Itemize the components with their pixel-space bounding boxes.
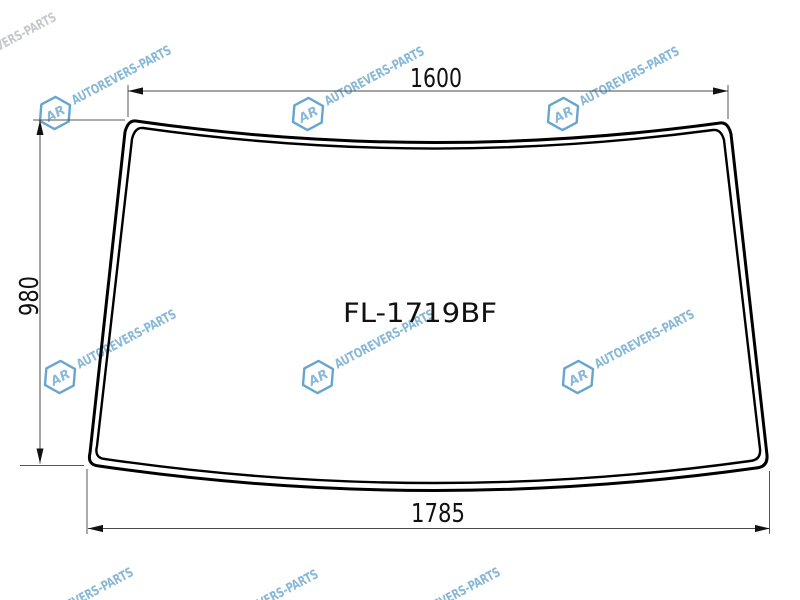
dimension-label-bottom: 1785 xyxy=(411,499,465,529)
arrowhead-bottom-left xyxy=(88,525,103,532)
arrowhead-top-left xyxy=(128,87,143,94)
part-number-label: FL-1719BF xyxy=(343,298,497,329)
technical-drawing-page: AR AUTOREVERS-PARTS AR AUTOREVERS-PARTS … xyxy=(0,0,800,600)
arrowhead-bottom-right xyxy=(755,525,770,532)
arrowhead-left-down xyxy=(37,449,44,464)
dimension-label-top: 1600 xyxy=(410,64,462,94)
dimension-label-left: 980 xyxy=(15,276,45,316)
windshield-diagram: 1600 980 1785 FL-1719BF xyxy=(0,0,800,600)
arrowhead-left-up xyxy=(37,120,44,135)
arrowhead-top-right xyxy=(713,87,728,94)
